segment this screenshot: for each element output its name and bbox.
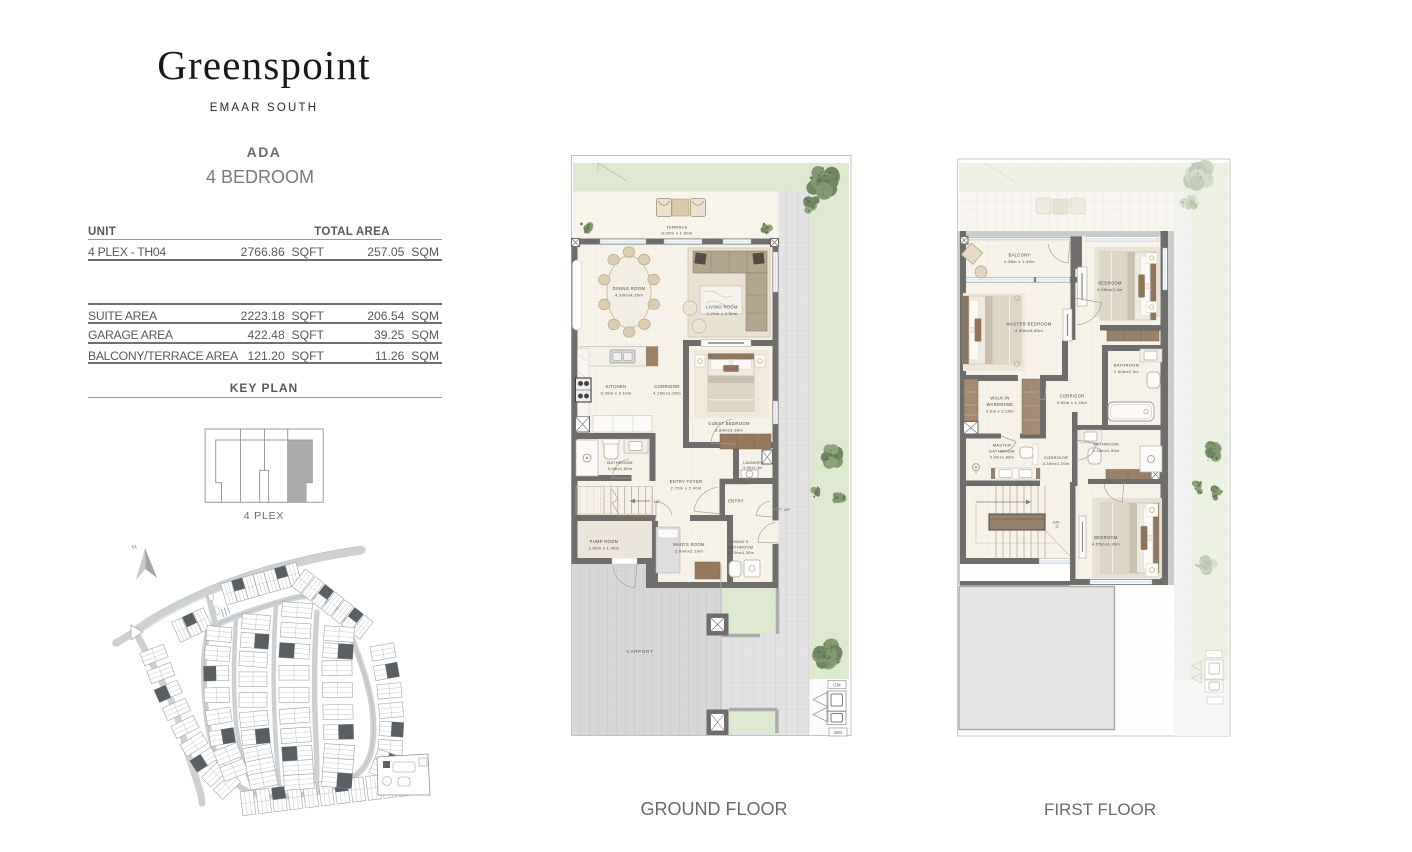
svg-text:DINING ROOM: DINING ROOM — [613, 286, 646, 291]
svg-text:PUMP ROOM: PUMP ROOM — [590, 539, 619, 544]
svg-text:BATHROOM: BATHROOM — [607, 460, 633, 465]
svg-text:4.30mx1.20m: 4.30mx1.20m — [1043, 462, 1070, 466]
svg-text:3.90mx3.3m: 3.90mx3.3m — [1097, 287, 1123, 292]
svg-text:4.36m x 1.40m: 4.36m x 1.40m — [1004, 259, 1035, 264]
svg-text:3.30m x 3.10m: 3.30m x 3.10m — [600, 391, 631, 396]
svg-text:CORRIDOR: CORRIDOR — [1044, 455, 1069, 460]
svg-text:BEDROOM: BEDROOM — [1098, 281, 1122, 286]
svg-text:BATHROOM: BATHROOM — [1114, 363, 1140, 368]
svg-text:MASTER: MASTER — [993, 443, 1012, 448]
svg-text:WALK-IN: WALK-IN — [990, 396, 1009, 401]
svg-text:UP: UP — [784, 507, 790, 512]
svg-text:WM: WM — [834, 730, 842, 735]
svg-text:8.00m x 1.80m: 8.00m x 1.80m — [661, 231, 692, 236]
svg-text:4.30mx3.80m: 4.30mx3.80m — [1015, 328, 1043, 333]
svg-text:UP: UP — [654, 499, 660, 504]
svg-text:LAUNDRY: LAUNDRY — [743, 461, 763, 465]
svg-text:MAID'S: MAID'S — [733, 539, 748, 544]
svg-text:ENTRY: ENTRY — [728, 499, 744, 504]
svg-text:BALCONY: BALCONY — [1008, 253, 1030, 258]
svg-text:1.70mx1.30m: 1.70mx1.30m — [728, 551, 754, 555]
svg-text:3.0m x 2.20m: 3.0m x 2.20m — [986, 409, 1014, 414]
svg-text:WARDROBE: WARDROBE — [987, 402, 1014, 407]
svg-text:CORRIDOR: CORRIDOR — [1059, 394, 1084, 399]
svg-text:3.80mx3.30m: 3.80mx3.30m — [715, 428, 743, 433]
svg-text:3.0mx1.86m: 3.0mx1.86m — [990, 456, 1014, 460]
svg-text:3.60m x 1.40m: 3.60m x 1.40m — [1057, 400, 1087, 405]
svg-text:4.20m x 3.50m: 4.20m x 3.50m — [706, 311, 737, 316]
svg-text:TERRACE: TERRACE — [666, 225, 688, 230]
svg-text:LIVING ROOM: LIVING ROOM — [706, 305, 738, 310]
svg-text:MAID'S ROOM: MAID'S ROOM — [673, 542, 705, 547]
svg-text:2.80mx2.0m: 2.80mx2.0m — [1114, 369, 1139, 374]
svg-text:3.0mx1.80m: 3.0mx1.80m — [608, 466, 633, 471]
svg-text:BATHROOM: BATHROOM — [1093, 442, 1119, 447]
svg-text:3.30mx1.80m: 3.30mx1.80m — [1092, 448, 1119, 453]
svg-text:GM: GM — [833, 683, 841, 688]
svg-text:GUEST BEDROOM: GUEST BEDROOM — [708, 421, 750, 426]
svg-text:BEDROOM: BEDROOM — [1094, 535, 1118, 540]
svg-text:4.30mx4.20m: 4.30mx4.20m — [615, 293, 643, 298]
svg-text:N: N — [131, 543, 138, 551]
svg-text:MASTER BEDROOM: MASTER BEDROOM — [1006, 322, 1051, 327]
svg-text:4.55mx3.30m: 4.55mx3.30m — [1092, 542, 1120, 547]
svg-text:4.15mx1.20m: 4.15mx1.20m — [653, 391, 681, 396]
svg-text:2.60mx2.10m: 2.60mx2.10m — [675, 549, 703, 554]
svg-text:0.90x1.3m: 0.90x1.3m — [744, 466, 763, 470]
svg-text:BATHROOM: BATHROOM — [989, 449, 1015, 454]
svg-text:ENTRY FOYER: ENTRY FOYER — [670, 479, 703, 484]
svg-text:BATHROOM: BATHROOM — [729, 545, 754, 550]
svg-text:CORRIDOR: CORRIDOR — [654, 384, 680, 389]
svg-text:CARPORT: CARPORT — [627, 649, 654, 654]
svg-text:2.70m x 2.40m: 2.70m x 2.40m — [670, 486, 701, 491]
svg-text:2.50m x 1.40m: 2.50m x 1.40m — [588, 546, 619, 551]
svg-text:KITCHEN: KITCHEN — [606, 384, 627, 389]
svg-text:DN: DN — [1053, 520, 1059, 525]
